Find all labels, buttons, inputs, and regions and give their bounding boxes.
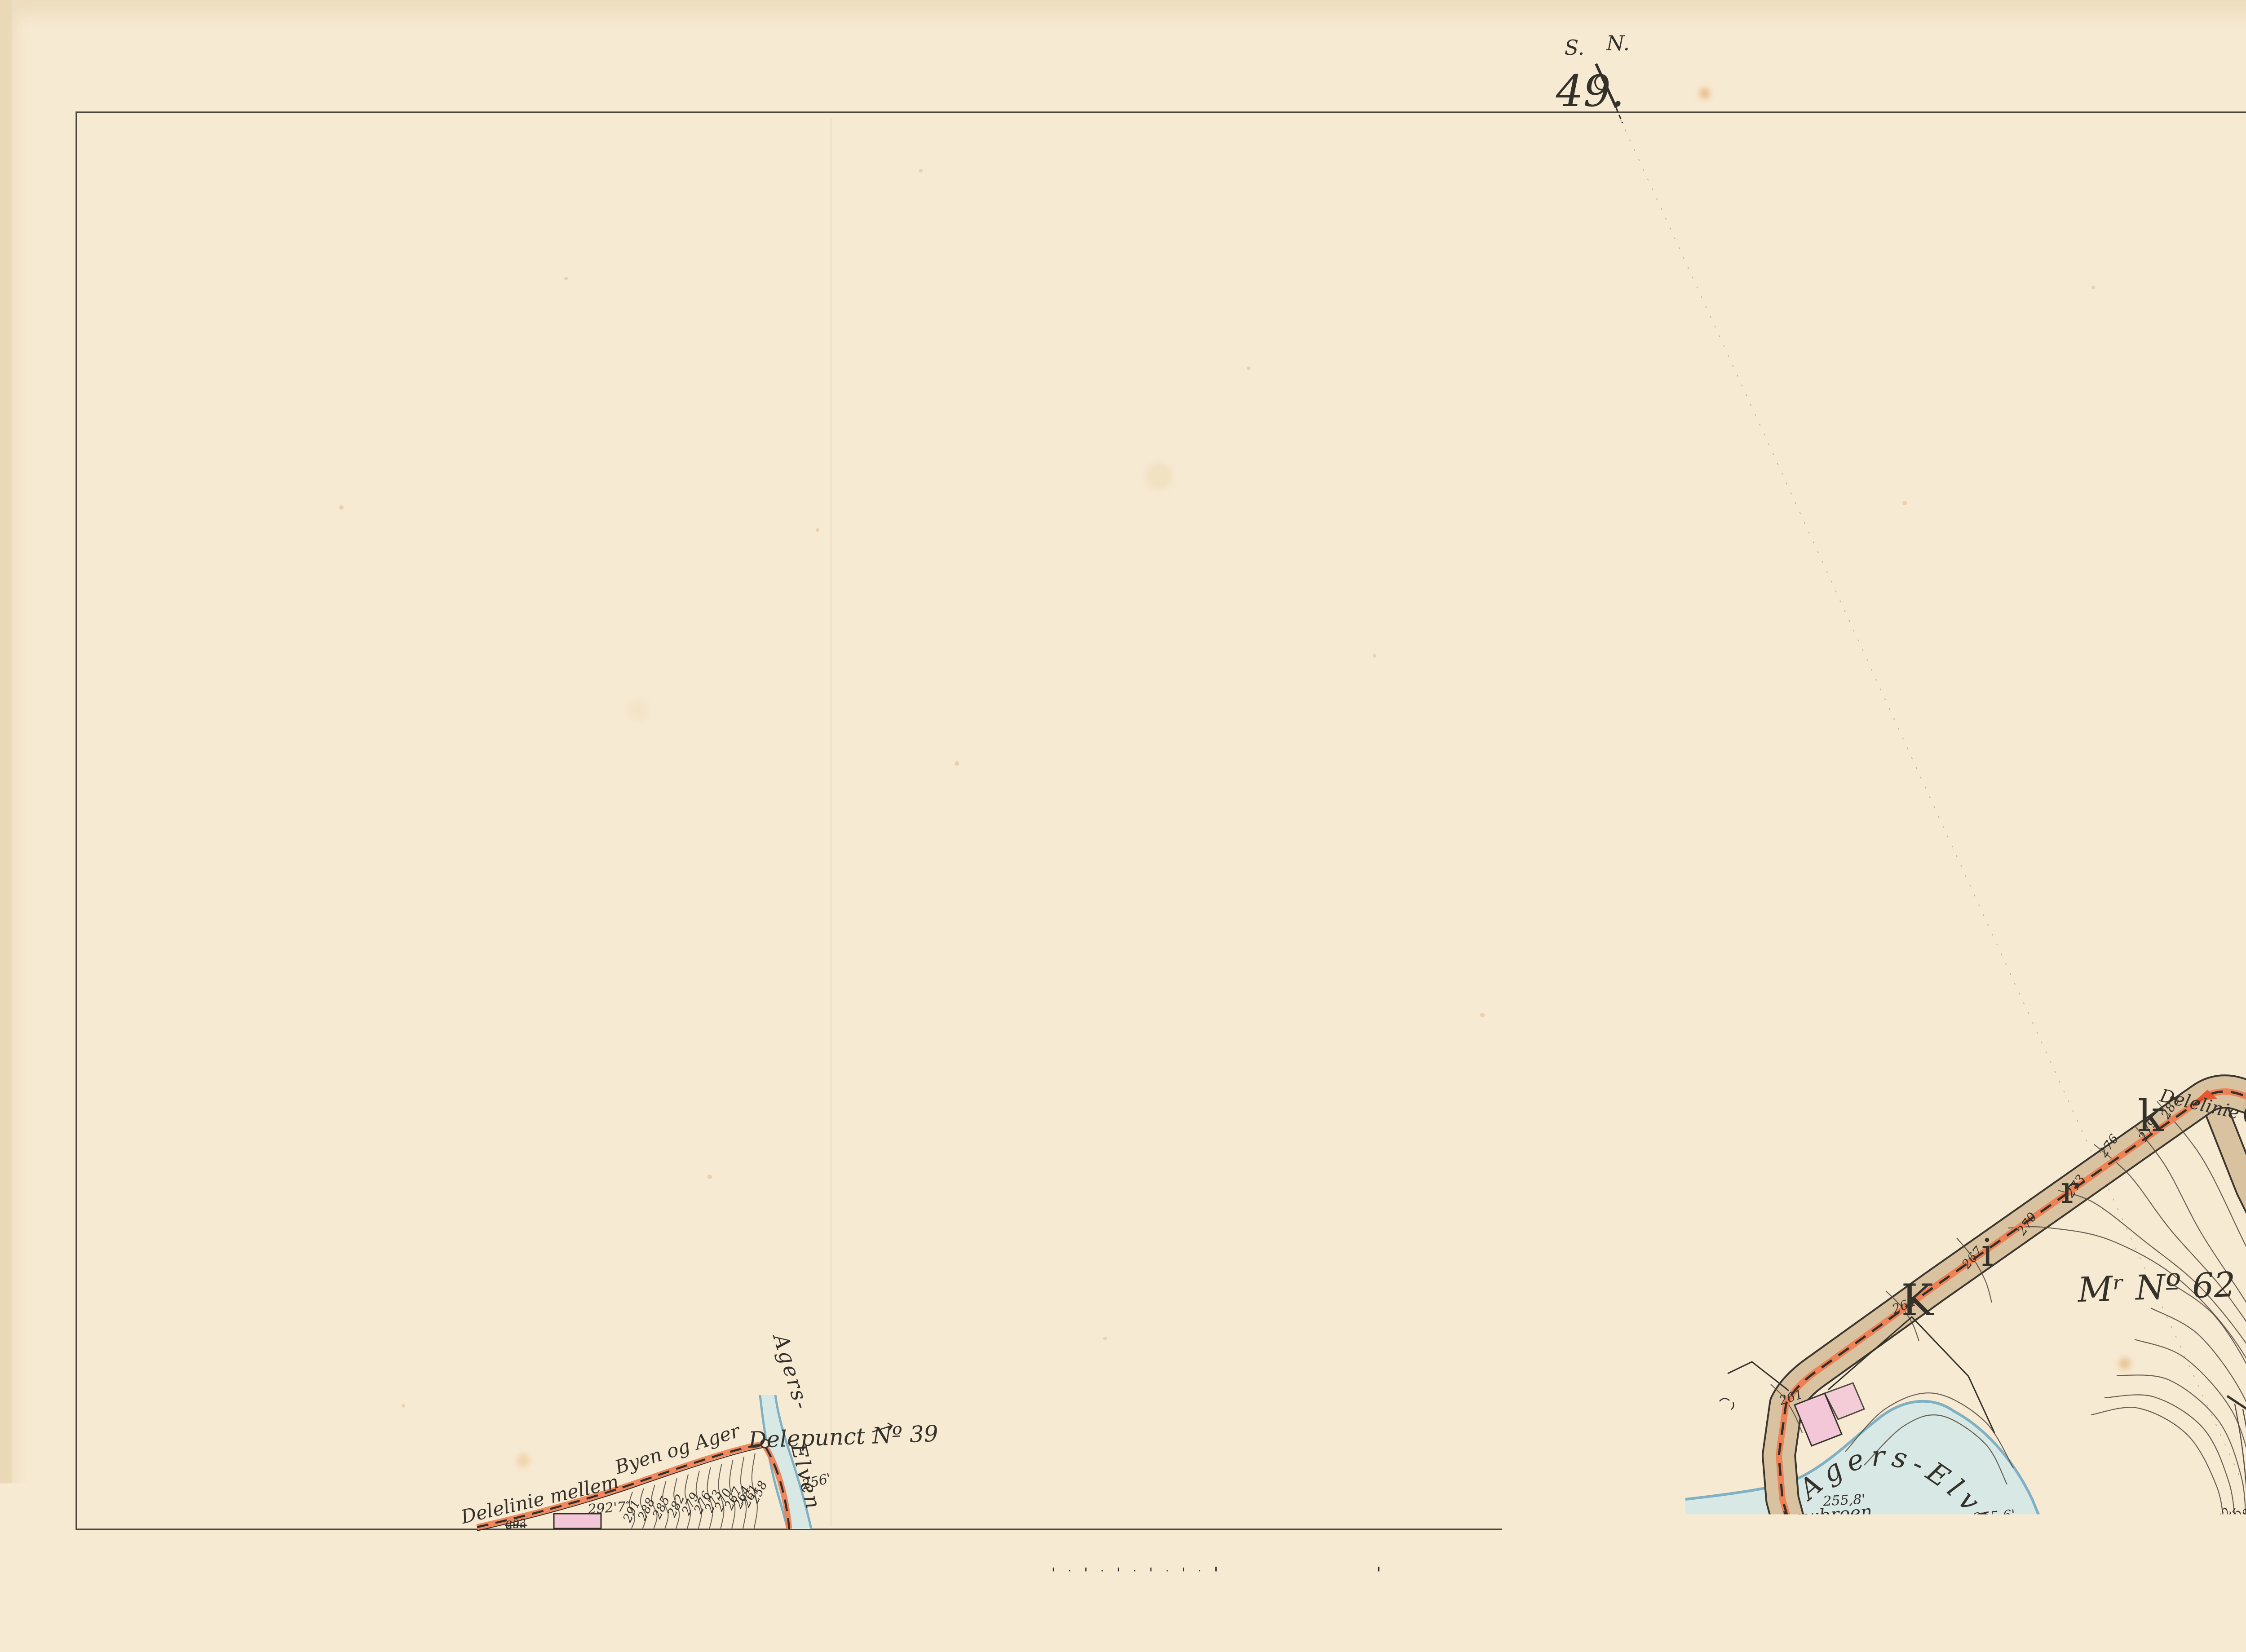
scale-num-50-left: 50: [1043, 1585, 1064, 1603]
scale-num-150: 150: [1689, 1594, 1720, 1612]
compass-label-s-top: S.: [1565, 35, 1585, 60]
sheet-number: 49.: [1556, 66, 1625, 116]
scale-num-20: 20: [1140, 1586, 1161, 1605]
parcel-mr-62: Mʳ Nº 62: [2076, 1264, 2236, 1310]
compass-label-n-top: N.: [1606, 31, 1630, 55]
scale-num-40: 40: [1075, 1586, 1096, 1604]
river-edge-spill: [2043, 1527, 2067, 1535]
survey-map-canvas: S. N. 49. S.: [0, 0, 2246, 1652]
scale-num-50: 50: [1368, 1590, 1389, 1608]
map-sheet: S. N. 49. S.: [0, 0, 2246, 1652]
sheet-edge-left: [0, 0, 12, 1652]
scale-num-0: 0: [1213, 1587, 1224, 1606]
scale-num-250-alen: 250 Alen: [2025, 1597, 2099, 1616]
scale-num-10: 10: [1173, 1586, 1194, 1605]
scale-num-100: 100: [1526, 1592, 1557, 1610]
rf-elev-255-8: 255,8': [1822, 1492, 1866, 1510]
scale-num-30: 30: [1108, 1586, 1129, 1604]
road-letter-e1: e: [2242, 1090, 2246, 1134]
scale-num-200: 200: [1851, 1595, 1882, 1614]
